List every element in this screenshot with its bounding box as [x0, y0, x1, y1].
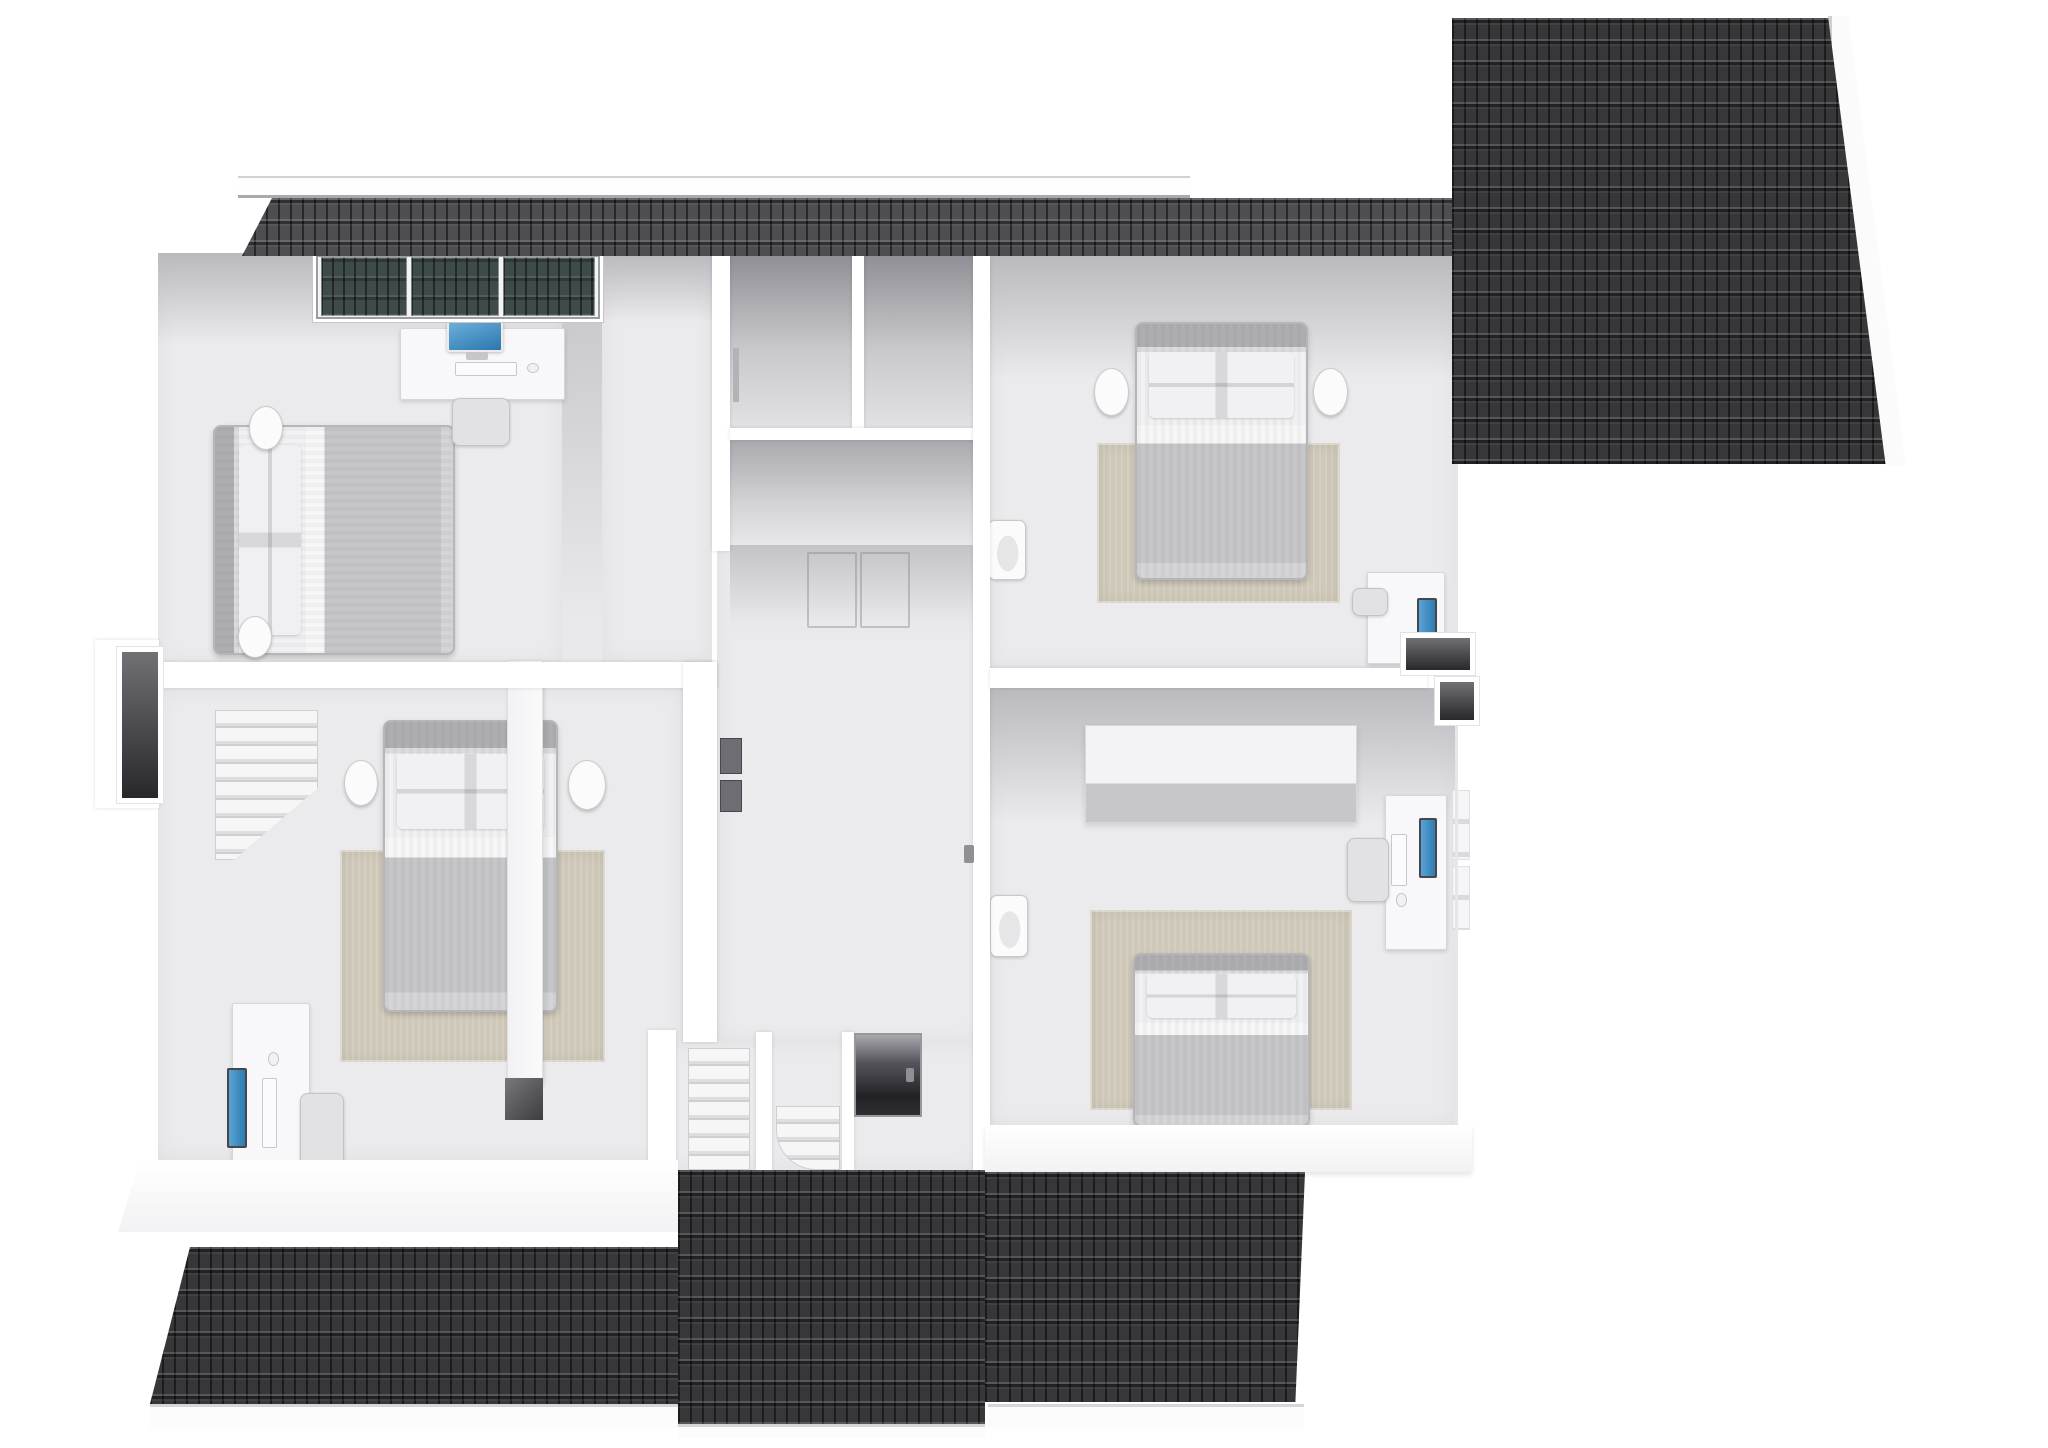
- doorway-handle: [906, 1068, 914, 1082]
- exterior-wallface-bottom-left: [118, 1160, 678, 1232]
- mouse-bottom-right: [1396, 893, 1407, 907]
- imac-screen: [447, 320, 503, 352]
- fascia-bottom-right: [988, 1404, 1304, 1428]
- keyboard-bottom-right: [1391, 834, 1407, 886]
- roof-bottom-eave-left: [150, 1247, 678, 1404]
- wall-between-right-bedrooms: [990, 668, 1427, 688]
- closet-b-interior: [864, 255, 978, 428]
- mouse-bottom-left: [268, 1052, 279, 1066]
- chimney-niche-right-1: [1406, 638, 1470, 670]
- sideboard-dark-end: [505, 1078, 543, 1120]
- monitor-bottom-left: [227, 1068, 247, 1148]
- nightstand-bottom-left-right: [568, 760, 606, 810]
- nightstand-top-left-lower: [238, 616, 272, 658]
- fascia-bottom-left: [150, 1404, 678, 1428]
- mouse-top-left: [527, 363, 539, 373]
- exterior-wallface-bottom-right: [985, 1125, 1472, 1172]
- roof-top-eave-strip: [242, 198, 1452, 256]
- roof-right-gable: [1452, 18, 1892, 464]
- skylight-glass-2: [411, 257, 499, 316]
- wall-stair-left: [648, 1030, 676, 1170]
- nightstand-top-right-right: [1313, 368, 1348, 416]
- closet-a-interior: [730, 255, 852, 428]
- nightstand-top-left-upper: [249, 406, 283, 450]
- wall-bottom-left-room-right: [683, 662, 717, 1042]
- wall-closet-divider: [852, 255, 864, 428]
- ridge-fascia-top: [238, 176, 1190, 198]
- chimney-niche-right-2: [1440, 682, 1474, 720]
- sideboard-bottom-left: [507, 660, 543, 1084]
- ceiling-slope-corridor: [602, 253, 712, 323]
- wall-sink-top-right: [988, 520, 1026, 580]
- imac-stand: [466, 352, 488, 360]
- wall-sink-bottom-right: [990, 895, 1028, 957]
- stair-rail-wall: [756, 1032, 772, 1170]
- wall-between-left-bedrooms: [158, 662, 717, 688]
- wall-hall-right: [973, 238, 990, 1170]
- fascia-bottom-center: [678, 1424, 985, 1438]
- door-handle-hall: [964, 845, 974, 863]
- wall-frame-hall-1: [720, 738, 742, 774]
- dresser-bottom-right: [1085, 725, 1357, 823]
- closet-c-interior: [730, 440, 978, 545]
- wall-frame-hall-2: [720, 780, 742, 812]
- wall-corridor-closets: [712, 238, 730, 551]
- sliding-door-outline-2: [860, 552, 910, 628]
- chair-bottom-right: [1347, 838, 1389, 902]
- chimney-niche-left: [122, 652, 158, 798]
- bed-bottom-right: [1133, 953, 1310, 1127]
- roof-bottom-eave-center: [678, 1170, 985, 1424]
- roof-bottom-eave-right: [985, 1172, 1305, 1402]
- chair-top-left: [452, 398, 510, 446]
- main-staircase: [688, 1048, 750, 1170]
- keyboard-top-left: [455, 362, 517, 376]
- nightstand-bottom-left-left: [344, 760, 378, 806]
- monitor-bottom-right: [1419, 818, 1437, 878]
- nightstand-top-right-left: [1094, 368, 1129, 416]
- skylight-glass-1: [321, 257, 407, 316]
- skylight-glass-3: [503, 257, 595, 316]
- wall-below-closets: [730, 428, 978, 440]
- bed-top-right: [1135, 322, 1308, 580]
- keyboard-bottom-left: [262, 1078, 277, 1148]
- closet-door-hinge: [733, 348, 739, 402]
- wall-stair-mid: [842, 1032, 854, 1170]
- sliding-door-outline-1: [807, 552, 857, 628]
- chair-top-right: [1352, 588, 1388, 616]
- floor-plan-scene: [0, 0, 2048, 1448]
